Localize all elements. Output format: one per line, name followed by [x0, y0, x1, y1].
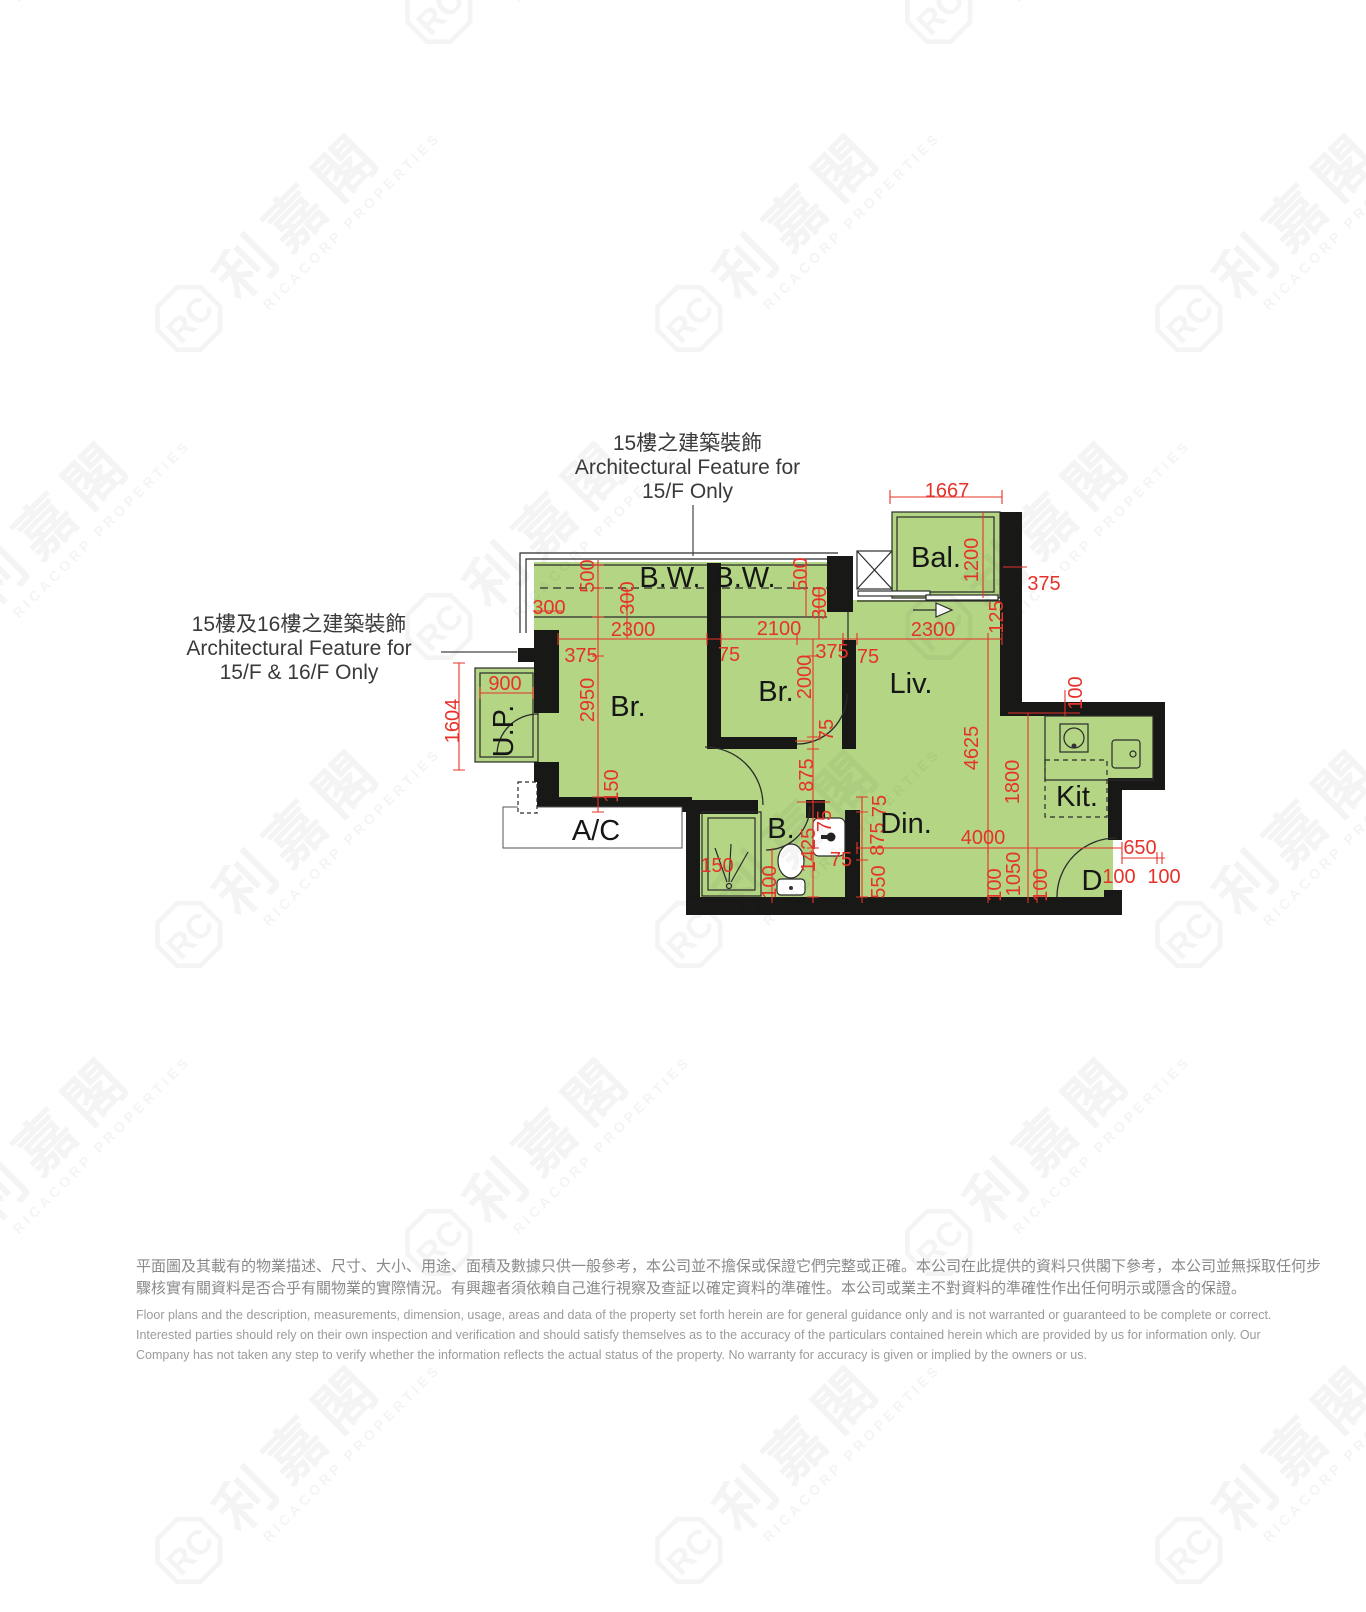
dim-door-100a: 100 [1102, 866, 1135, 888]
annotation-arch-feature-15f: 15樓之建築裝飾 Architectural Feature for 15/F … [565, 432, 810, 504]
dim-balcony-width: 1667 [925, 480, 970, 502]
disclaimer-en-line3: Company has not taken any step to verify… [136, 1345, 1321, 1365]
dim-bw-left-300h: 300 [532, 597, 565, 619]
disclaimer-zh-line2: 驟核實有關資料是否合乎有關物業的實際情況。有興趣者須依賴自己進行視察及查証以確定… [136, 1278, 1321, 1300]
label-dining: Din. [880, 808, 932, 840]
annotation-line-en2: 15/F & 16/F Only [158, 661, 440, 685]
label-kitchen: Kit. [1056, 781, 1098, 813]
dim-wall-75b: 75 [857, 646, 879, 668]
watermark-cjk-text: 利嘉閣 [692, 1339, 900, 1547]
disclaimer-zh-line1: 平面圖及其載有的物業描述、尺寸、大小、用途、面積及數據只供一般參考，本公司並不擔… [136, 1256, 1321, 1278]
dim-br1-depth: 2950 [577, 678, 599, 723]
watermark-cjk-text: 利嘉閣 [192, 1339, 400, 1547]
watermark-en-text: RICACORP PROPERTIES [260, 1361, 444, 1545]
annotation-line-en1: Architectural Feature for [158, 637, 440, 661]
dim-door-100b: 100 [1147, 866, 1180, 888]
disclaimer: 平面圖及其載有的物業描述、尺寸、大小、用途、面積及數據只供一般參考，本公司並不擔… [136, 1256, 1321, 1365]
dim-wall-75c: 75 [816, 719, 838, 741]
label-bw2: B.W. [714, 562, 775, 594]
dim-entrance-1050: 1050 [1003, 852, 1025, 897]
label-balcony: Bal. [911, 542, 961, 574]
dim-living-width: 2300 [911, 619, 956, 641]
label-bathroom: B. [767, 813, 794, 845]
dim-bw-left-300: 300 [617, 581, 639, 614]
dim-wall-375b: 375 [815, 641, 848, 663]
dim-bw-right-300: 300 [809, 586, 831, 619]
disclaimer-en-line1: Floor plans and the description, measure… [136, 1305, 1321, 1325]
ac-dashed-box [518, 782, 537, 813]
dim-kitchen-100: 100 [1065, 676, 1087, 709]
watermark-cjk-text: 利嘉閣 [1192, 1339, 1366, 1547]
label-bw1: B.W. [639, 562, 700, 594]
balcony-slide-panel-1 [858, 591, 930, 596]
dim-balcony-depth: 1200 [961, 538, 983, 583]
dim-wall-75e: 75 [814, 810, 836, 832]
annotation-arch-feature-15f-16f: 15樓及16樓之建築裝飾 Architectural Feature for 1… [158, 613, 440, 685]
annotation-line-en2: 15/F Only [565, 480, 810, 504]
dim-bw-left-500: 500 [577, 559, 599, 592]
dim-br1-wall-150: 150 [601, 769, 623, 802]
dim-hall-875: 875 [796, 758, 818, 791]
label-bedroom-1: Br. [610, 691, 645, 723]
dim-bath-1425: 1425 [798, 828, 820, 873]
ricacorp-logo-text: RC [1159, 1521, 1221, 1583]
dim-wall-375a: 375 [564, 645, 597, 667]
dim-living-depth: 4625 [961, 726, 983, 771]
label-unit-d: D [1082, 865, 1103, 897]
dim-door-650: 650 [1123, 837, 1156, 859]
balcony-slide-panel-2 [926, 595, 998, 600]
dim-br2-depth: 2000 [794, 655, 816, 700]
dim-up-height: 1604 [442, 699, 464, 744]
dim-bw-right-500: 500 [790, 557, 812, 590]
dim-wall-75a: 75 [718, 644, 740, 666]
label-ac-platform: A/C [572, 815, 620, 847]
ricacorp-logo-icon: RC [642, 1504, 735, 1597]
dim-shower-150: 150 [700, 855, 733, 877]
label-utility-platform: U.P. [488, 705, 520, 758]
floorplan-page: { "annotations": { "top": {"line1": "15樓… [0, 0, 1366, 1366]
dim-dining-width: 4000 [961, 827, 1006, 849]
dim-entrance-100a: 100 [984, 868, 1006, 901]
ricacorp-logo-text: RC [659, 1521, 721, 1583]
dim-up-width: 900 [488, 673, 521, 695]
dim-din-550: 550 [868, 865, 890, 898]
dim-entrance-100b: 100 [1030, 868, 1052, 901]
annotation-line-cjk: 15樓之建築裝飾 [565, 432, 810, 456]
label-living: Liv. [890, 668, 933, 700]
ricacorp-logo-icon: RC [142, 1504, 235, 1597]
label-bedroom-2: Br. [758, 676, 793, 708]
annotation-line-cjk: 15樓及16樓之建築裝飾 [158, 613, 440, 637]
watermark-en-text: RICACORP PROPERTIES [1260, 1361, 1366, 1545]
annotation-line-en1: Architectural Feature for [565, 456, 810, 480]
dim-br2-width: 2100 [757, 618, 802, 640]
watermark-en-text: RICACORP PROPERTIES [760, 1361, 944, 1545]
disclaimer-en-line2: Interested parties should rely on their … [136, 1325, 1321, 1345]
dim-bath-100: 100 [759, 865, 781, 898]
dim-balcony-wall: 375 [1027, 573, 1060, 595]
ricacorp-logo-text: RC [159, 1521, 221, 1583]
arch-feature-nub [518, 648, 534, 662]
ricacorp-logo-icon: RC [1142, 1504, 1235, 1597]
shaft-x-box-icon [857, 551, 892, 589]
dim-br1-width: 2300 [611, 619, 656, 641]
dim-kitchen-depth: 1800 [1002, 760, 1024, 805]
dim-wall-75f: 75 [830, 849, 852, 871]
dim-living-gap: 125 [986, 600, 1008, 633]
